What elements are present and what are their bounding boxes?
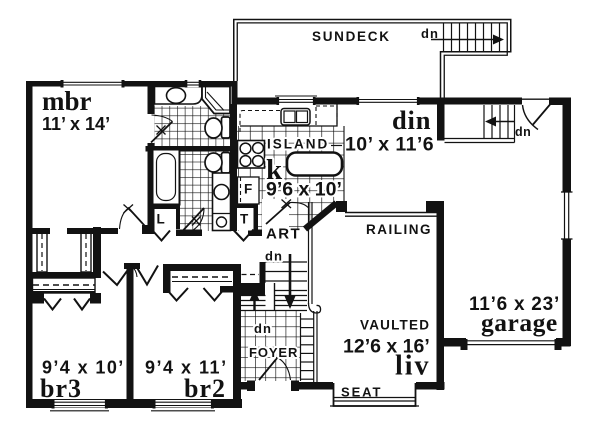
svg-text:dn: dn [254,321,272,336]
svg-text:9’6 x 10’: 9’6 x 10’ [266,179,342,201]
svg-text:L: L [157,212,165,227]
svg-text:br2: br2 [184,374,226,403]
svg-text:11’ x 14’: 11’ x 14’ [42,114,110,134]
svg-text:din: din [392,105,431,135]
svg-text:br3: br3 [40,374,82,403]
svg-text:SUNDECK: SUNDECK [312,29,391,44]
svg-text:FOYER: FOYER [249,345,298,360]
svg-text:liv: liv [395,351,431,382]
svg-text:dn: dn [515,125,531,139]
svg-text:RAILING: RAILING [366,222,432,237]
svg-text:ART: ART [266,226,301,243]
svg-text:garage: garage [481,308,558,337]
svg-text:VAULTED: VAULTED [360,318,430,333]
svg-text:10’ x 11’6: 10’ x 11’6 [345,134,434,156]
svg-text:dn: dn [265,249,283,264]
svg-text:F: F [244,182,252,197]
svg-text:T: T [240,212,249,227]
svg-text:SEAT: SEAT [341,385,382,400]
svg-text:mbr: mbr [42,86,92,116]
svg-text:dn: dn [421,26,439,41]
svg-text:ISLAND: ISLAND [267,137,329,152]
